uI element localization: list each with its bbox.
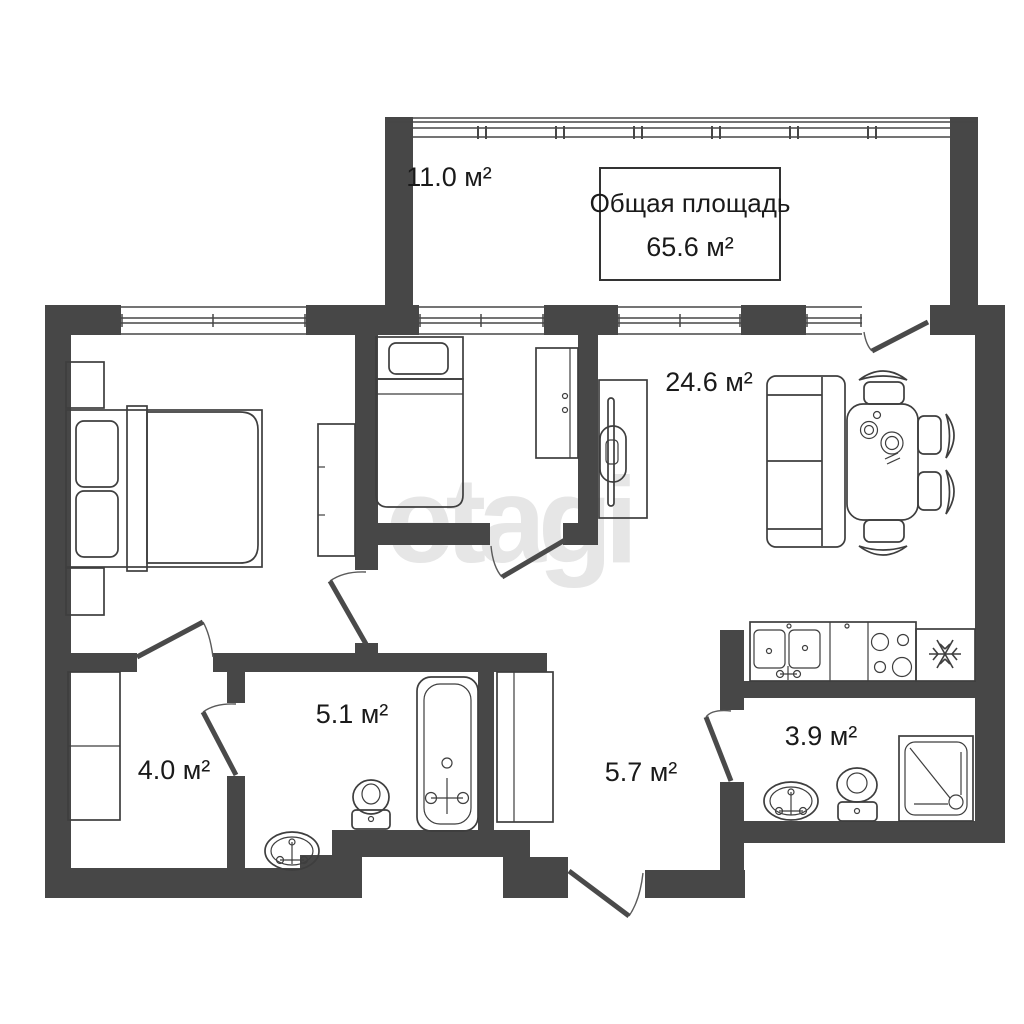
dressing-bathroom-divider-top bbox=[227, 672, 245, 703]
room-label-balcony: 11.0 м² bbox=[406, 162, 492, 192]
bottom-wall-step1 bbox=[300, 855, 362, 898]
total-area-box-frame bbox=[600, 168, 780, 280]
bottom-wall-step2 bbox=[503, 857, 568, 898]
floor-plan-page: etagi bbox=[0, 0, 1024, 1024]
bathroom-bottom-wall bbox=[332, 830, 530, 857]
top-wall-seg4 bbox=[741, 305, 806, 335]
left-outer-wall bbox=[45, 305, 71, 898]
bedroom2-bottom-wall-stub bbox=[563, 523, 598, 545]
hallway-right-wall-bottom bbox=[720, 782, 744, 898]
bedroom2-right-wall bbox=[578, 305, 598, 545]
right-outer-wall bbox=[975, 305, 1005, 843]
room-label-bathroom: 5.1 м² bbox=[316, 699, 389, 729]
hallway-left-wall bbox=[478, 653, 494, 857]
total-area-box: Общая площадь 65.6 м² bbox=[590, 168, 791, 280]
room-label-wc: 3.9 м² bbox=[785, 721, 858, 751]
kitchen-wc-wall bbox=[720, 681, 1005, 698]
room-label-dressing: 4.0 м² bbox=[138, 755, 211, 785]
room-label-living: 24.6 м² bbox=[665, 367, 753, 397]
dressing-bathroom-divider-bottom bbox=[227, 776, 245, 870]
room-label-hallway: 5.7 м² bbox=[605, 757, 678, 787]
total-area-value: 65.6 м² bbox=[646, 232, 734, 262]
floor-plan-svg: etagi bbox=[0, 0, 1024, 1024]
balcony-right-wall bbox=[950, 117, 978, 310]
total-area-title: Общая площадь bbox=[590, 188, 791, 218]
corridor-wall bbox=[213, 653, 547, 672]
balcony-left-wall bbox=[385, 117, 413, 310]
bedroom2-bottom-wall bbox=[355, 523, 490, 545]
wc-bottom-wall bbox=[744, 821, 1005, 843]
bedroom1-bottom-wall-left bbox=[68, 653, 137, 672]
